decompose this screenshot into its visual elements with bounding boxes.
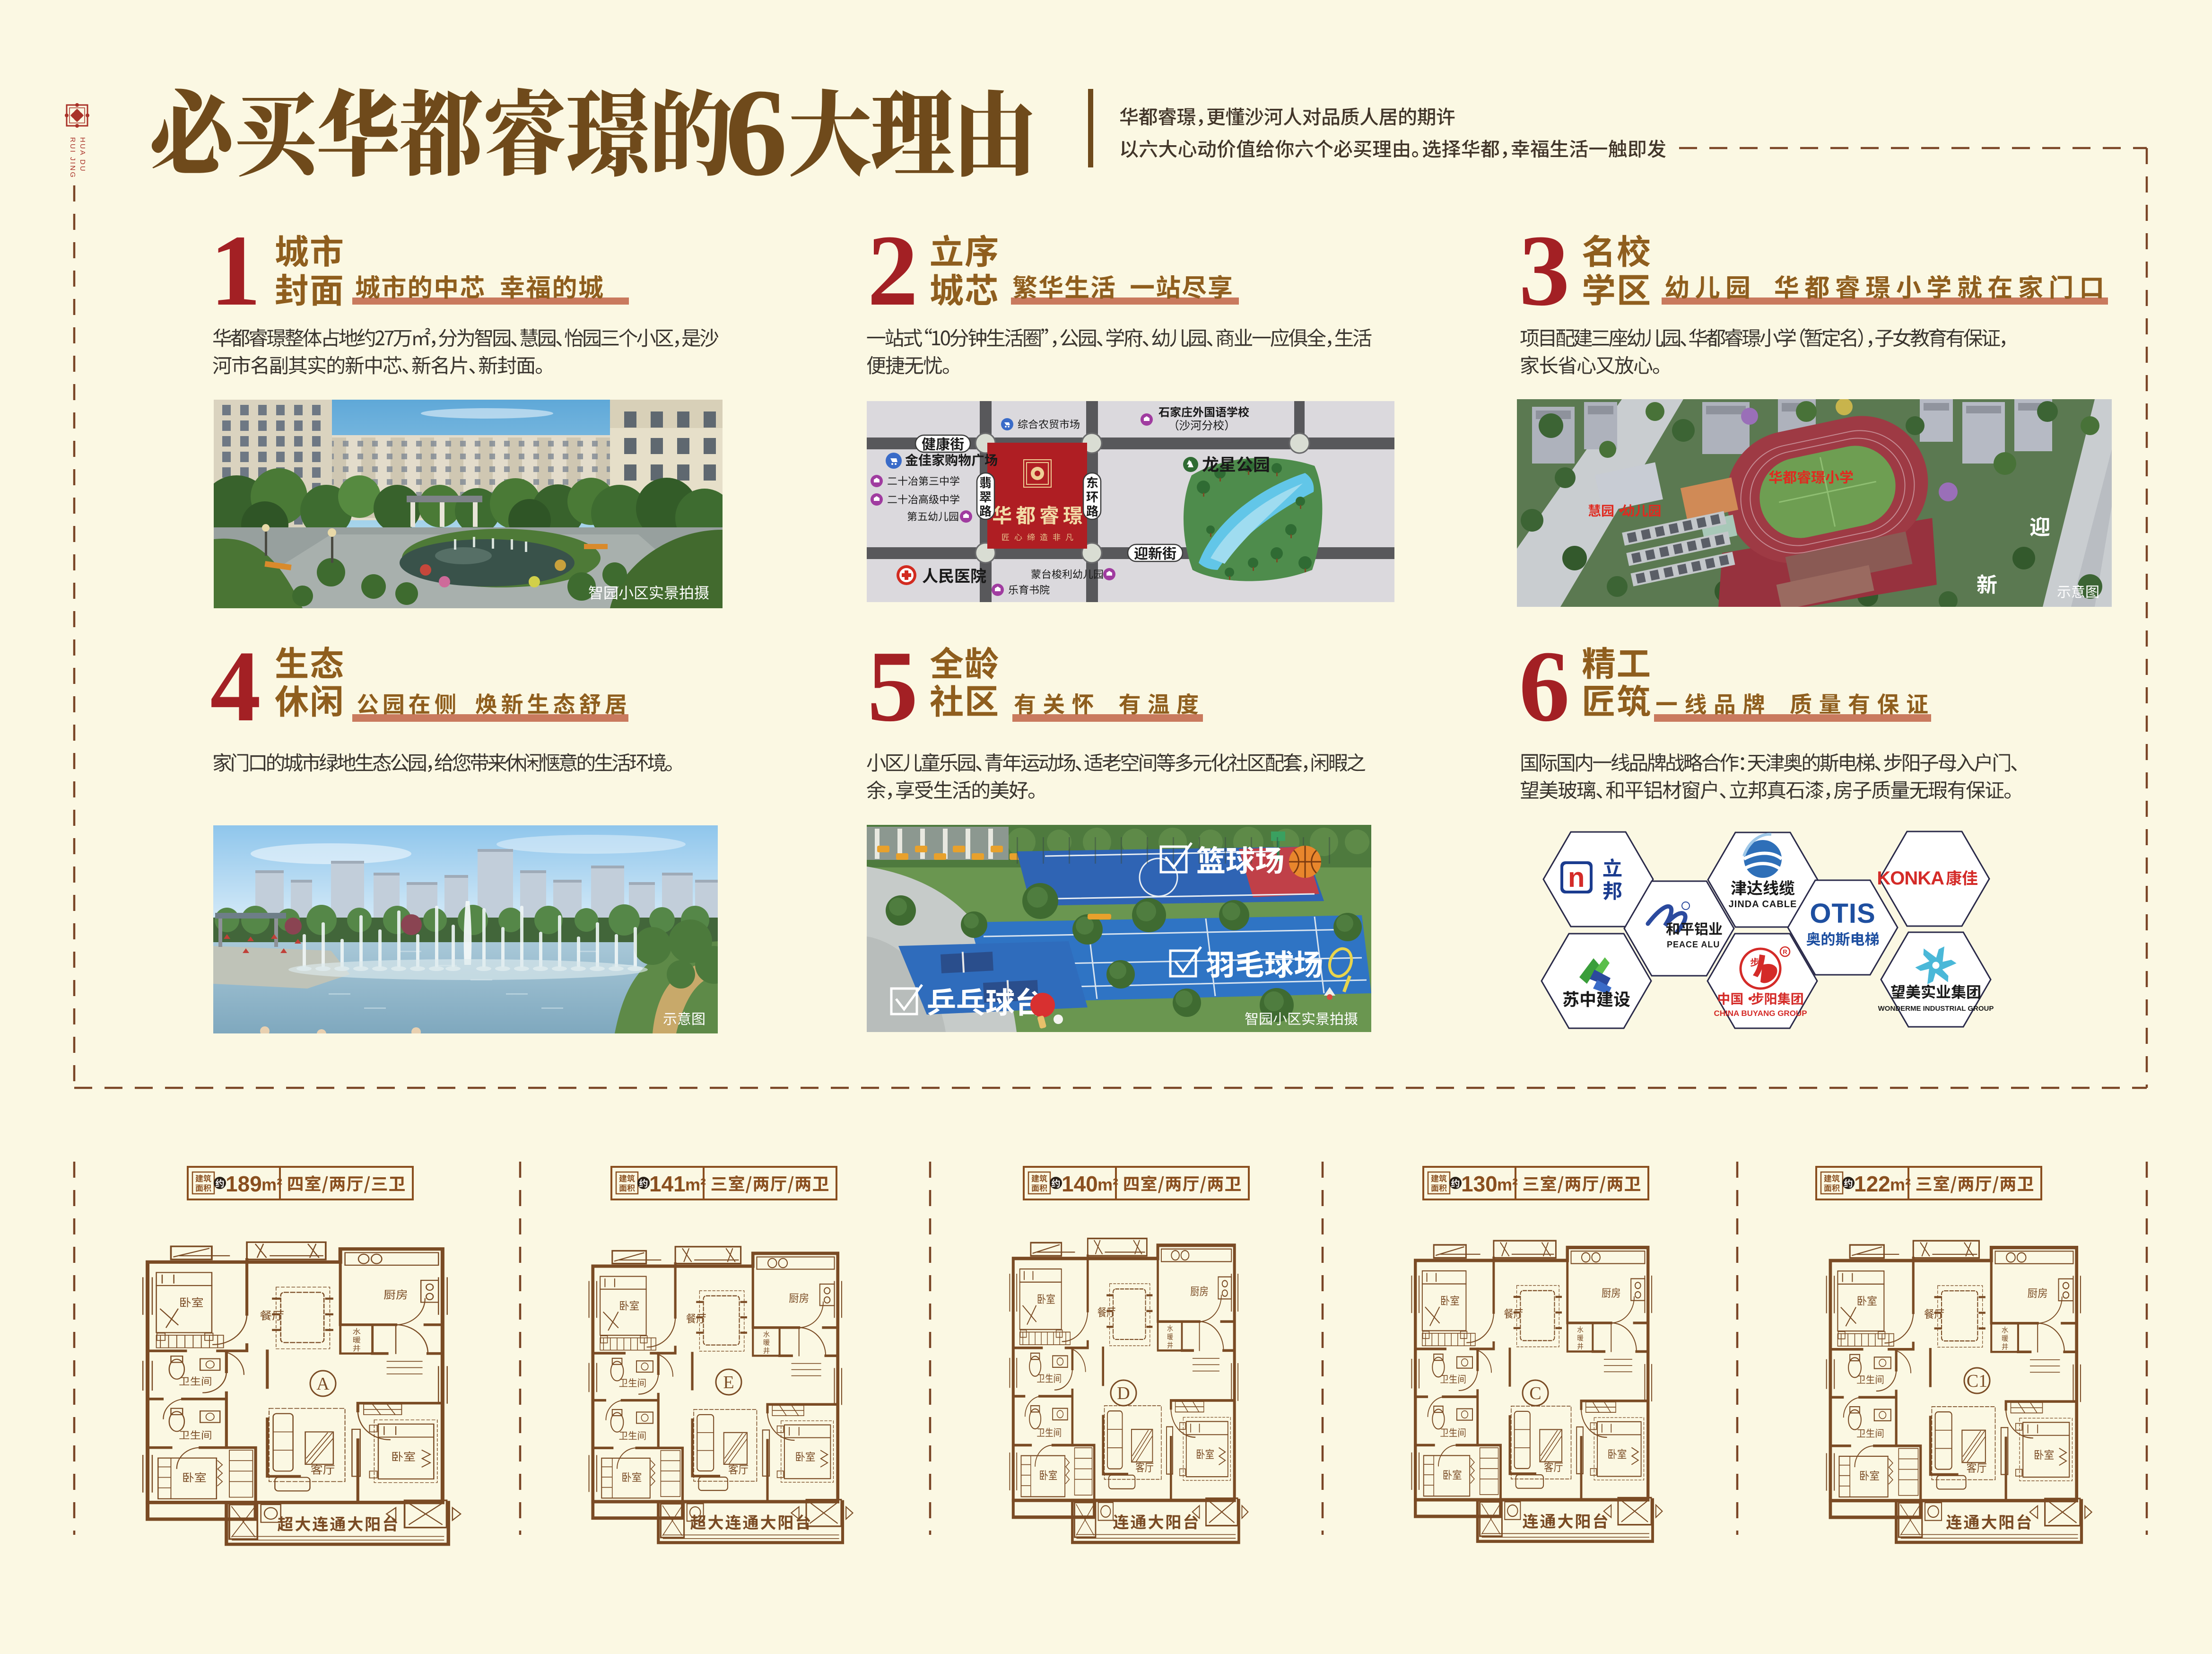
svg-text:KONKA: KONKA — [1877, 868, 1944, 889]
svg-text:m²: m² — [685, 1175, 706, 1194]
svg-text:A: A — [316, 1374, 330, 1394]
svg-text:140: 140 — [1062, 1172, 1098, 1196]
svg-text:6: 6 — [725, 63, 788, 202]
svg-text:141: 141 — [649, 1172, 686, 1196]
svg-text:2: 2 — [867, 214, 918, 327]
svg-text:m²: m² — [1497, 1175, 1518, 1194]
svg-text:RUI JING: RUI JING — [69, 137, 77, 179]
svg-text:6: 6 — [1519, 630, 1570, 743]
svg-text:C: C — [1529, 1383, 1541, 1403]
svg-text:HUA DU: HUA DU — [78, 137, 87, 173]
svg-text:5: 5 — [867, 630, 918, 743]
svg-text:PEACE ALU: PEACE ALU — [1667, 940, 1720, 949]
svg-text:122: 122 — [1854, 1172, 1890, 1196]
svg-text:WONDERME INDUSTRIAL GROUP: WONDERME INDUSTRIAL GROUP — [1878, 1005, 1994, 1013]
svg-text:3: 3 — [1519, 214, 1570, 327]
svg-text:E: E — [723, 1373, 734, 1392]
svg-text:m²: m² — [261, 1175, 282, 1194]
svg-text:130: 130 — [1461, 1172, 1498, 1196]
svg-text:m²: m² — [1890, 1175, 1911, 1194]
svg-text:CHINA BUYANG GROUP: CHINA BUYANG GROUP — [1714, 1009, 1807, 1018]
svg-text:JINDA CABLE: JINDA CABLE — [1729, 899, 1797, 910]
svg-text:OTIS: OTIS — [1810, 898, 1875, 929]
svg-text:R: R — [1783, 948, 1787, 955]
svg-text:1: 1 — [210, 214, 261, 327]
svg-text:D: D — [1117, 1383, 1130, 1403]
svg-text:C1: C1 — [1967, 1371, 1987, 1391]
svg-text:n: n — [1568, 862, 1585, 893]
svg-text:m²: m² — [1097, 1175, 1118, 1194]
svg-text:4: 4 — [210, 630, 261, 743]
svg-text:189: 189 — [226, 1172, 262, 1196]
